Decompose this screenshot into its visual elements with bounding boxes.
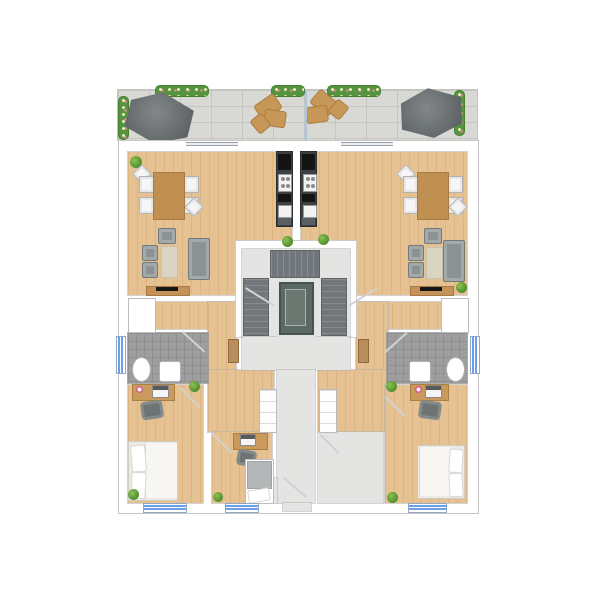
entry-door-right-apartment <box>358 339 369 363</box>
lounge-chair-right <box>424 228 442 244</box>
kitchen-counter-right <box>302 218 315 225</box>
kitchen-sink-right <box>303 205 317 218</box>
terrace-planter <box>328 86 380 96</box>
bed-pillow <box>130 445 147 473</box>
corridor-floor <box>277 370 315 503</box>
dining-chair <box>184 176 199 193</box>
terrace-lounge-chair <box>305 105 329 125</box>
entry-door-left-apartment <box>228 339 239 363</box>
kitchen-fridge-left <box>278 154 291 170</box>
plant <box>128 489 139 500</box>
wardrobe-right <box>319 389 337 433</box>
kitchen-counter-left <box>278 218 291 225</box>
armchair <box>142 262 158 278</box>
elevator-car-inner <box>285 289 306 326</box>
terrace-planter <box>119 97 128 139</box>
kitchen-unit-right <box>301 152 316 226</box>
window-bedroom-left <box>143 503 187 513</box>
plant <box>387 492 398 503</box>
dining-table-left <box>153 172 185 220</box>
tv-left <box>156 287 178 291</box>
armchair <box>142 245 158 261</box>
window-bedroom-right <box>408 503 447 513</box>
plant <box>386 381 397 392</box>
bed-blanket <box>419 447 450 496</box>
laptop <box>425 385 442 398</box>
dining-chair <box>448 176 463 193</box>
floor-plan-canvas <box>0 0 600 600</box>
laptop <box>240 434 256 446</box>
bed-pillow <box>247 487 271 504</box>
sliding-door-right-terrace <box>341 142 393 146</box>
kitchen-oven-left <box>278 194 291 202</box>
laptop <box>152 385 169 398</box>
kitchen-fridge-right <box>302 154 315 170</box>
stair-flight-right <box>322 279 346 335</box>
office-chair <box>418 400 442 421</box>
landing-floor <box>242 337 350 370</box>
terrace-glass-divider <box>305 90 307 140</box>
single-bed <box>245 459 274 504</box>
window-second-room <box>225 503 259 513</box>
sofa-right <box>443 240 465 282</box>
plant <box>456 282 467 293</box>
bed-blanket <box>145 443 177 498</box>
bed-pillow <box>448 473 463 498</box>
armchair <box>408 262 424 278</box>
plant <box>282 236 293 247</box>
office-chair <box>140 400 164 421</box>
bed-pillow <box>448 449 464 474</box>
window-bathroom-right <box>470 336 480 374</box>
plant <box>189 381 200 392</box>
desk-lamp <box>415 386 422 393</box>
tv-right <box>420 287 442 291</box>
dining-chair <box>403 176 418 193</box>
kitchen-cooktop-left <box>278 174 292 192</box>
window-bathroom-left <box>116 336 126 374</box>
washbasin-right <box>409 361 431 382</box>
desk-lamp <box>136 386 143 393</box>
toilet-left <box>132 357 151 382</box>
sofa-left <box>188 238 210 280</box>
rug-left <box>161 246 178 278</box>
sliding-door-left-terrace <box>186 142 238 146</box>
shower-left <box>128 298 156 333</box>
wardrobe-left <box>259 389 277 433</box>
kitchen-sink-left <box>278 205 292 218</box>
kitchen-cooktop-right <box>303 174 317 192</box>
washbasin-left <box>159 361 181 382</box>
elevator <box>277 280 316 337</box>
lounge-chair-left <box>158 228 176 244</box>
shower-right <box>441 298 469 333</box>
kitchen-unit-left <box>277 152 292 226</box>
toilet-right <box>446 357 465 382</box>
plant <box>213 492 223 502</box>
dining-table-right <box>417 172 449 220</box>
dining-chair <box>403 197 418 214</box>
stair-flight-top <box>271 251 319 277</box>
rug-right <box>426 247 443 279</box>
dining-chair <box>139 197 154 214</box>
kitchen-oven-right <box>302 194 315 202</box>
plant <box>318 234 329 245</box>
terrace-planter <box>272 86 304 96</box>
building-entrance-threshold <box>283 503 311 511</box>
double-bed-right <box>417 445 465 499</box>
dining-chair <box>139 176 154 193</box>
single-bed-blanket <box>247 461 272 489</box>
armchair <box>408 245 424 261</box>
